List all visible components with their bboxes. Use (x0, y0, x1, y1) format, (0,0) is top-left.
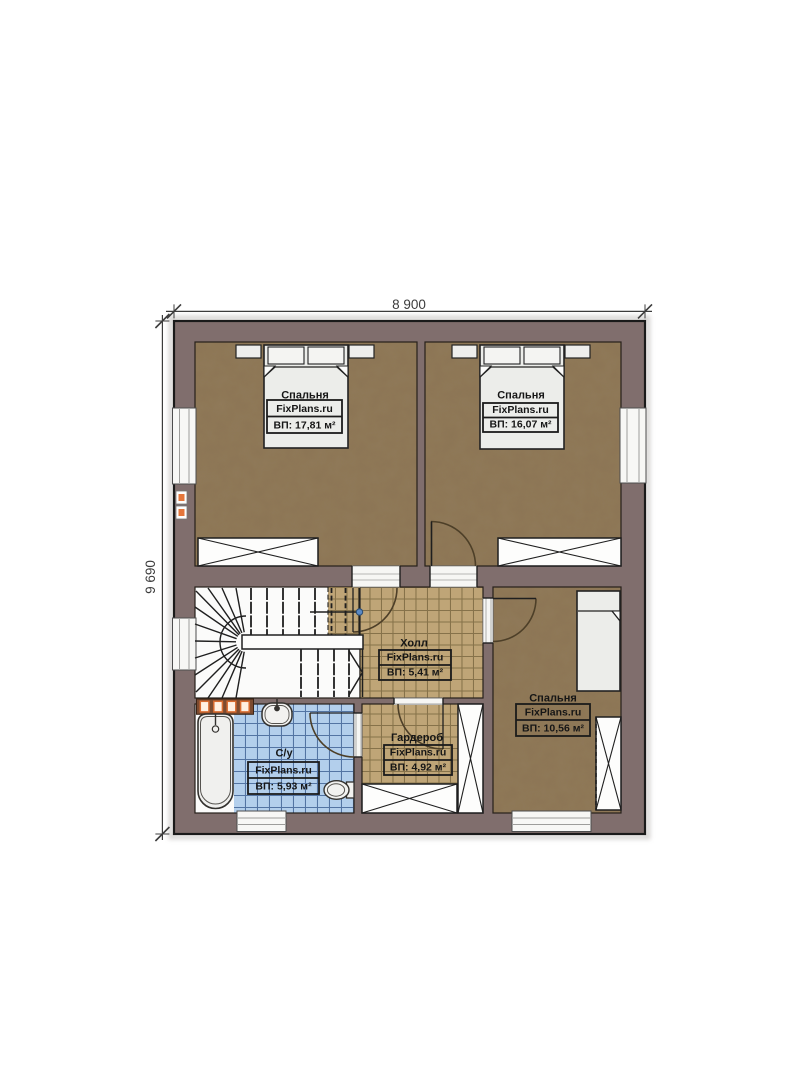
svg-text:9 690: 9 690 (143, 560, 158, 594)
svg-text:FixPlans.ru: FixPlans.ru (492, 404, 549, 416)
svg-text:ВП: 4,92 м²: ВП: 4,92 м² (390, 762, 447, 774)
svg-text:Холл: Холл (400, 638, 428, 650)
svg-text:FixPlans.ru: FixPlans.ru (525, 707, 582, 719)
svg-text:Спальня: Спальня (497, 390, 545, 402)
svg-text:FixPlans.ru: FixPlans.ru (387, 652, 444, 664)
svg-text:FixPlans.ru: FixPlans.ru (276, 403, 333, 415)
svg-text:FixPlans.ru: FixPlans.ru (255, 765, 312, 777)
svg-text:С/у: С/у (275, 748, 293, 760)
svg-text:Гардероб: Гардероб (391, 732, 443, 744)
svg-text:8 900: 8 900 (392, 297, 426, 312)
svg-text:ВП: 5,41 м²: ВП: 5,41 м² (387, 667, 444, 679)
svg-text:ВП: 5,93 м²: ВП: 5,93 м² (255, 781, 312, 793)
svg-text:FixPlans.ru: FixPlans.ru (390, 747, 447, 759)
svg-text:ВП: 16,07 м²: ВП: 16,07 м² (489, 419, 552, 431)
svg-text:Спальня: Спальня (529, 693, 577, 705)
svg-text:ВП: 17,81 м²: ВП: 17,81 м² (273, 420, 336, 432)
svg-text:ВП: 10,56 м²: ВП: 10,56 м² (522, 723, 585, 735)
